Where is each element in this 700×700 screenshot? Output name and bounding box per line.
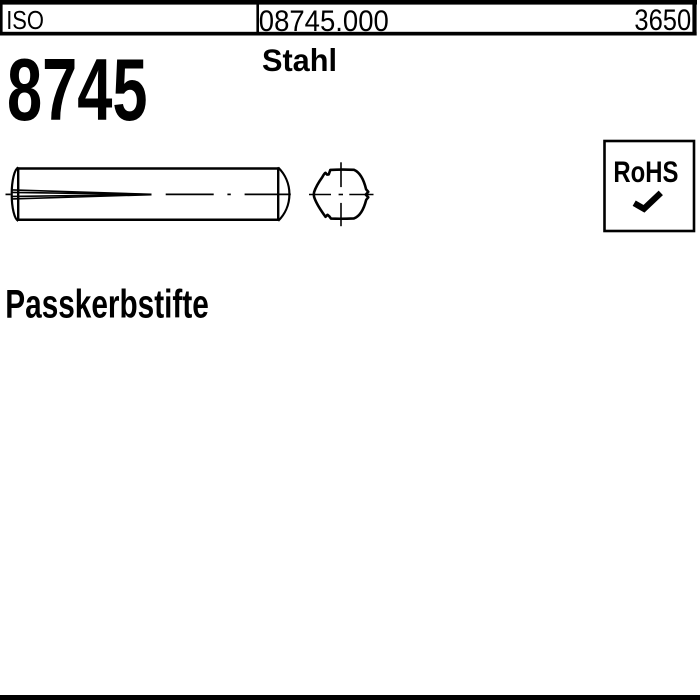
svg-text:ISO: ISO: [6, 7, 44, 35]
svg-text:Stahl: Stahl: [262, 42, 337, 78]
svg-text:Passkerbstifte: Passkerbstifte: [5, 283, 209, 327]
svg-text:RoHS: RoHS: [613, 156, 678, 189]
svg-text:08745.000: 08745.000: [259, 6, 389, 38]
svg-text:3650: 3650: [634, 5, 691, 37]
svg-text:8745: 8745: [7, 40, 148, 139]
